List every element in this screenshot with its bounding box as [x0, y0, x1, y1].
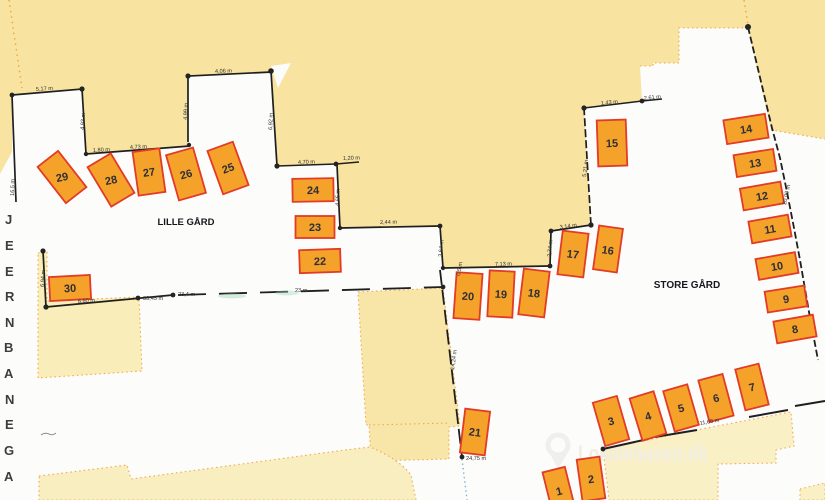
svg-text:17: 17	[566, 248, 580, 261]
svg-text:N: N	[5, 315, 14, 330]
svg-text:21: 21	[468, 426, 482, 439]
svg-text:G: G	[4, 443, 14, 458]
svg-text:10: 10	[770, 260, 784, 274]
svg-text:19: 19	[495, 289, 508, 302]
svg-text:12: 12	[755, 190, 769, 204]
svg-text:1,80 m: 1,80 m	[93, 147, 111, 154]
svg-text:E: E	[5, 264, 14, 279]
svg-text:33,45 m: 33,45 m	[143, 296, 164, 302]
svg-text:STORE GÅRD: STORE GÅRD	[654, 278, 721, 291]
svg-text:J: J	[5, 212, 12, 227]
svg-text:30: 30	[64, 283, 77, 296]
svg-text:E: E	[5, 417, 14, 432]
svg-text:1,20 m: 1,20 m	[343, 155, 361, 162]
svg-text:23: 23	[309, 222, 321, 234]
svg-text:B: B	[4, 340, 13, 355]
svg-text:2,44 m: 2,44 m	[380, 220, 398, 226]
svg-text:27: 27	[142, 166, 156, 180]
svg-text:16: 16	[601, 244, 615, 258]
svg-text:8,60 m: 8,60 m	[78, 298, 96, 305]
svg-text:6,92 m: 6,92 m	[268, 112, 275, 130]
svg-text:4,65 m: 4,65 m	[335, 188, 342, 206]
svg-text:R: R	[5, 289, 15, 304]
svg-text:18: 18	[527, 287, 541, 300]
svg-text:20: 20	[461, 291, 474, 304]
svg-text:A: A	[4, 469, 14, 484]
svg-text:11: 11	[763, 223, 777, 237]
svg-text:16,5 m: 16,5 m	[10, 178, 17, 196]
svg-text:24,75 m: 24,75 m	[466, 456, 487, 462]
svg-text:4,70 m: 4,70 m	[298, 159, 316, 166]
svg-text:15: 15	[606, 138, 619, 150]
svg-text:23,4 m: 23,4 m	[178, 292, 195, 298]
svg-text:28: 28	[104, 174, 118, 188]
svg-text:N: N	[5, 392, 14, 407]
svg-text:13: 13	[748, 157, 762, 171]
svg-text:LILLE GÅRD: LILLE GÅRD	[158, 217, 215, 228]
svg-text:6,94 m: 6,94 m	[40, 269, 47, 287]
svg-text:4,06 m: 4,06 m	[215, 68, 233, 75]
svg-text:A: A	[4, 366, 14, 381]
svg-text:24: 24	[307, 185, 320, 197]
svg-text:23 m: 23 m	[295, 288, 308, 294]
svg-text:5,17 m: 5,17 m	[36, 86, 54, 93]
svg-text:7,13 m: 7,13 m	[495, 261, 513, 268]
svg-text:29: 29	[55, 171, 69, 185]
svg-text:4,73 m: 4,73 m	[130, 144, 148, 151]
svg-text:4,99 m: 4,99 m	[183, 102, 190, 120]
svg-text:4,93 m: 4,93 m	[80, 112, 87, 130]
svg-text:22: 22	[314, 256, 327, 268]
svg-text:E: E	[5, 238, 14, 253]
